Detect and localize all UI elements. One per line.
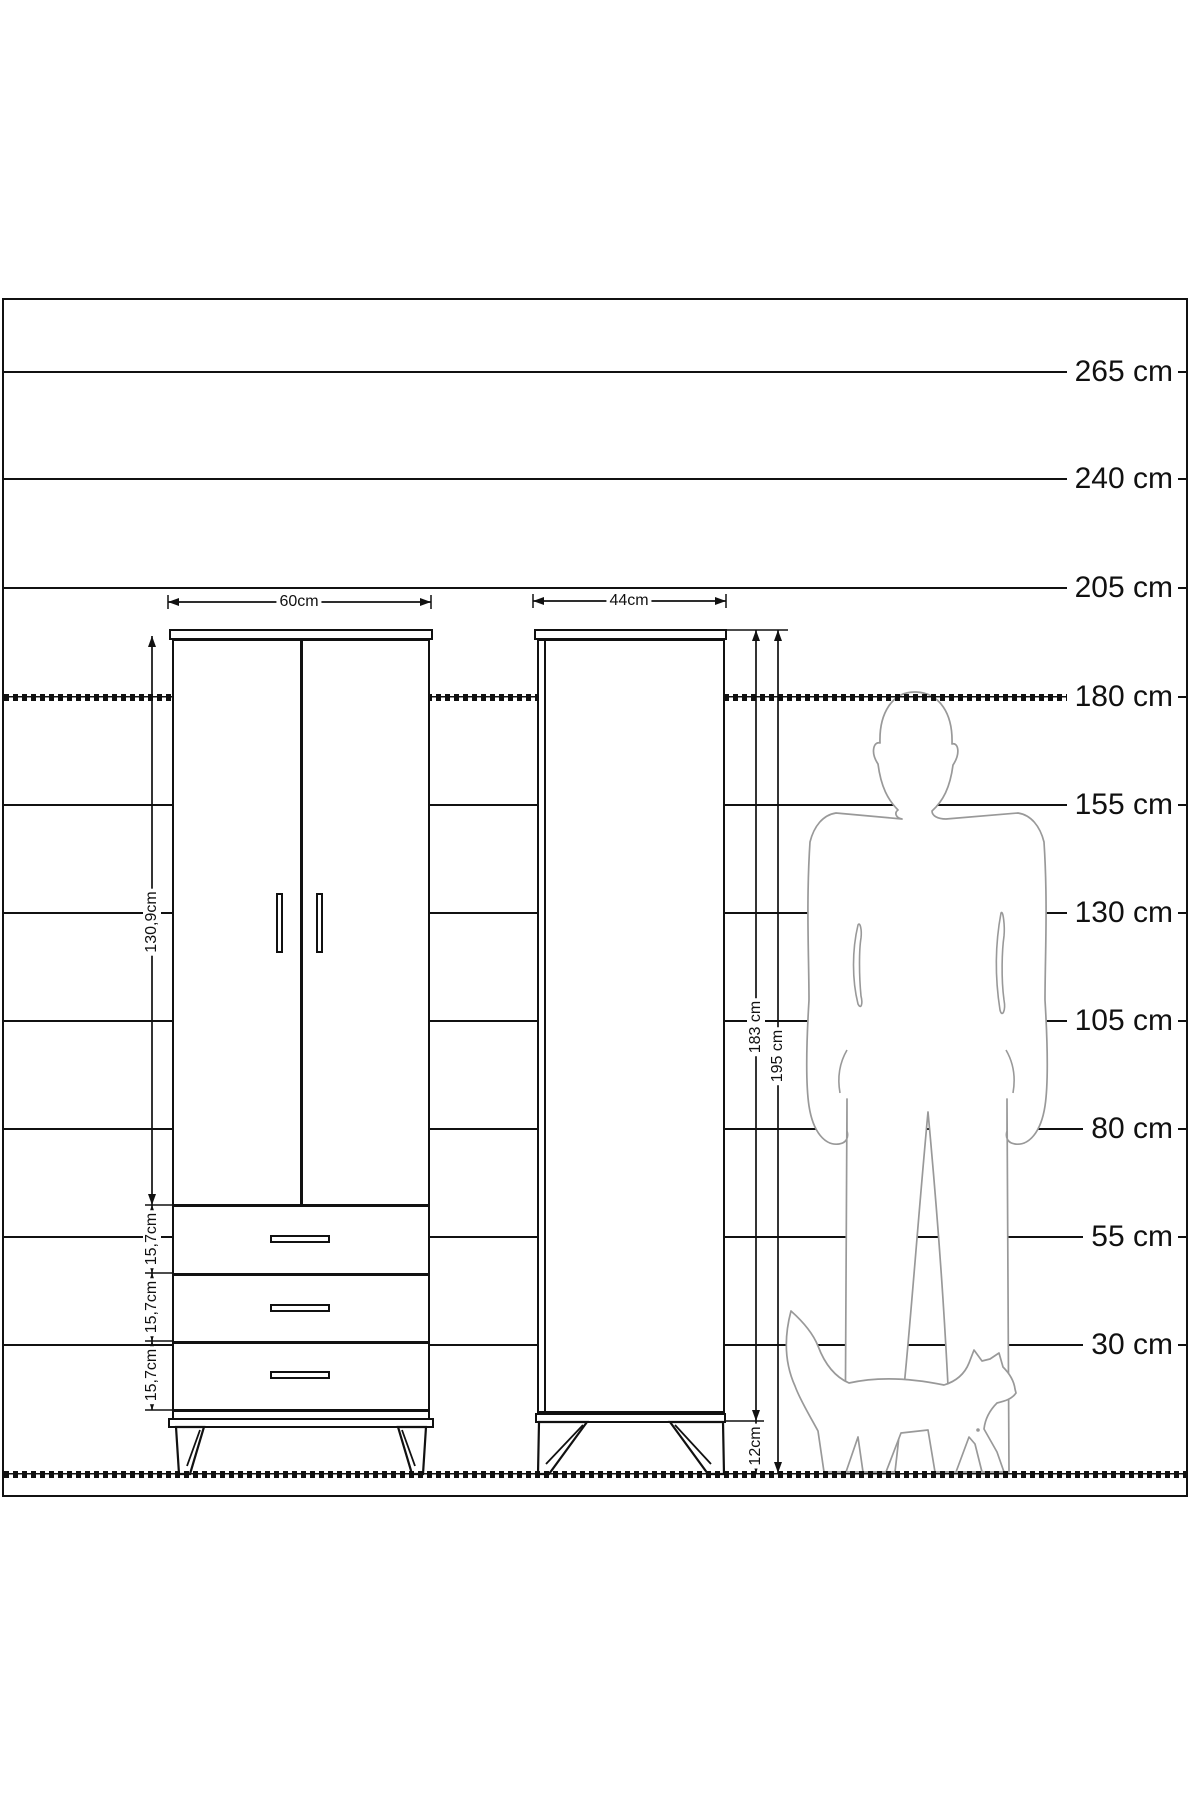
scale-label: 155 cm xyxy=(1067,787,1178,823)
size-chart-page: 265 cm 240 cm 205 cm 180 cm 155 cm 130 c… xyxy=(0,0,1200,1800)
front-width-label: 60cm xyxy=(276,593,321,611)
scale-label: 205 cm xyxy=(1067,570,1178,606)
scale-line-205cm: 205 cm xyxy=(4,570,1186,606)
scale-label: 105 cm xyxy=(1067,1003,1178,1039)
scale-line-240cm: 240 cm xyxy=(4,461,1186,497)
ruler-line-stub xyxy=(1178,478,1186,480)
scale-label: 240 cm xyxy=(1067,461,1178,497)
ruler-line-stub xyxy=(1178,696,1186,698)
scale-label: 80 cm xyxy=(1083,1111,1178,1147)
ruler-line xyxy=(4,1128,1083,1130)
ruler-line xyxy=(4,1344,1083,1346)
floor-hatch-line xyxy=(4,1471,1188,1478)
scale-line-55cm: 55 cm xyxy=(4,1219,1186,1255)
scale-label: 180 cm xyxy=(1067,679,1178,715)
ruler-line-stub xyxy=(1178,1344,1186,1346)
hatched-ruler-line xyxy=(4,694,1067,701)
ruler-line-stub xyxy=(1178,1236,1186,1238)
scale-line-265cm: 265 cm xyxy=(4,354,1186,390)
scale-label: 130 cm xyxy=(1067,895,1178,931)
scale-line-30cm: 30 cm xyxy=(4,1327,1186,1363)
body-height-label: 183 cm xyxy=(747,998,765,1056)
ruler-line xyxy=(4,1020,1067,1022)
ruler-line-stub xyxy=(1178,1020,1186,1022)
side-depth-label: 44cm xyxy=(606,592,651,610)
ruler-line xyxy=(4,587,1067,589)
ruler-line-stub xyxy=(1178,912,1186,914)
door-height-label: 130,9cm xyxy=(143,888,161,955)
leg-height-label: 12cm xyxy=(747,1423,765,1468)
ruler-line xyxy=(4,371,1067,373)
ruler-line-stub xyxy=(1178,1128,1186,1130)
ruler-line xyxy=(4,1236,1083,1238)
scale-label: 55 cm xyxy=(1083,1219,1178,1255)
scale-label: 30 cm xyxy=(1083,1327,1178,1363)
scale-line-80cm: 80 cm xyxy=(4,1111,1186,1147)
ruler-line-stub xyxy=(1178,371,1186,373)
total-height-label: 195 cm xyxy=(769,1027,787,1085)
scale-line-130cm: 130 cm xyxy=(4,895,1186,931)
drawer-height-label-1: 15,7cm xyxy=(143,1210,161,1268)
scale-line-180cm-hatched: 180 cm xyxy=(4,679,1186,715)
ruler-line-stub xyxy=(1178,804,1186,806)
ruler-line-stub xyxy=(1178,587,1186,589)
scale-line-155cm: 155 cm xyxy=(4,787,1186,823)
ruler-line xyxy=(4,912,1067,914)
ruler-line xyxy=(4,478,1067,480)
drawer-height-label-3: 15,7cm xyxy=(143,1346,161,1404)
ruler-line xyxy=(4,804,1067,806)
drawer-height-label-2: 15,7cm xyxy=(143,1278,161,1336)
scale-line-105cm: 105 cm xyxy=(4,1003,1186,1039)
scale-label: 265 cm xyxy=(1067,354,1178,390)
